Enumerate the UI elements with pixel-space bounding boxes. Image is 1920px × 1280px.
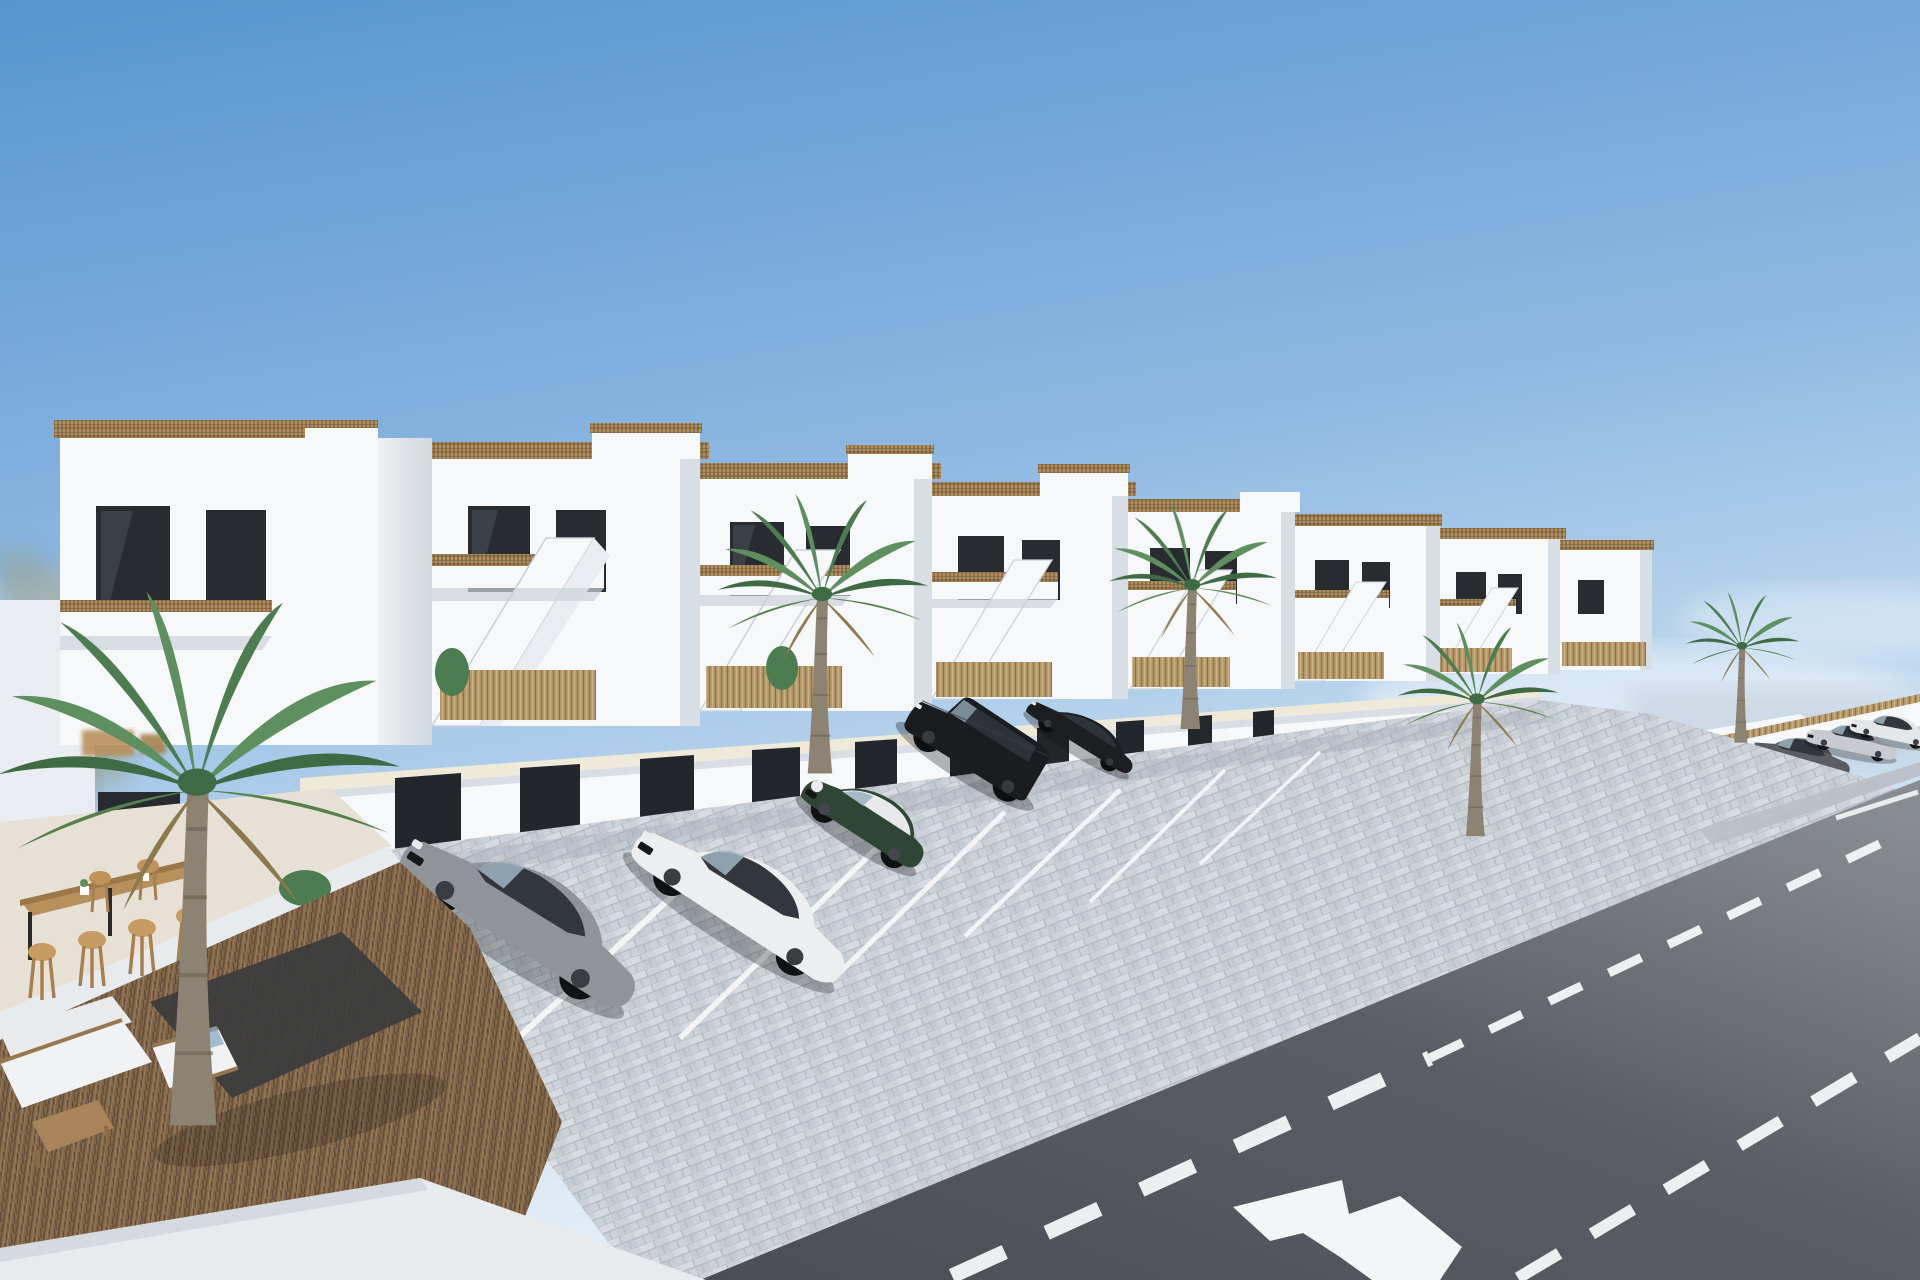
townhouse-unit-4 bbox=[928, 464, 1136, 699]
architectural-rendering bbox=[0, 0, 1920, 1280]
townhouse-unit-5 bbox=[1124, 492, 1300, 689]
townhouse-unit-8 bbox=[1558, 540, 1654, 670]
townhouse-unit-6 bbox=[1292, 514, 1442, 681]
townhouse-unit-7 bbox=[1436, 528, 1566, 674]
rendered-scene bbox=[0, 0, 1920, 1280]
townhouse-unit-2 bbox=[427, 423, 709, 726]
